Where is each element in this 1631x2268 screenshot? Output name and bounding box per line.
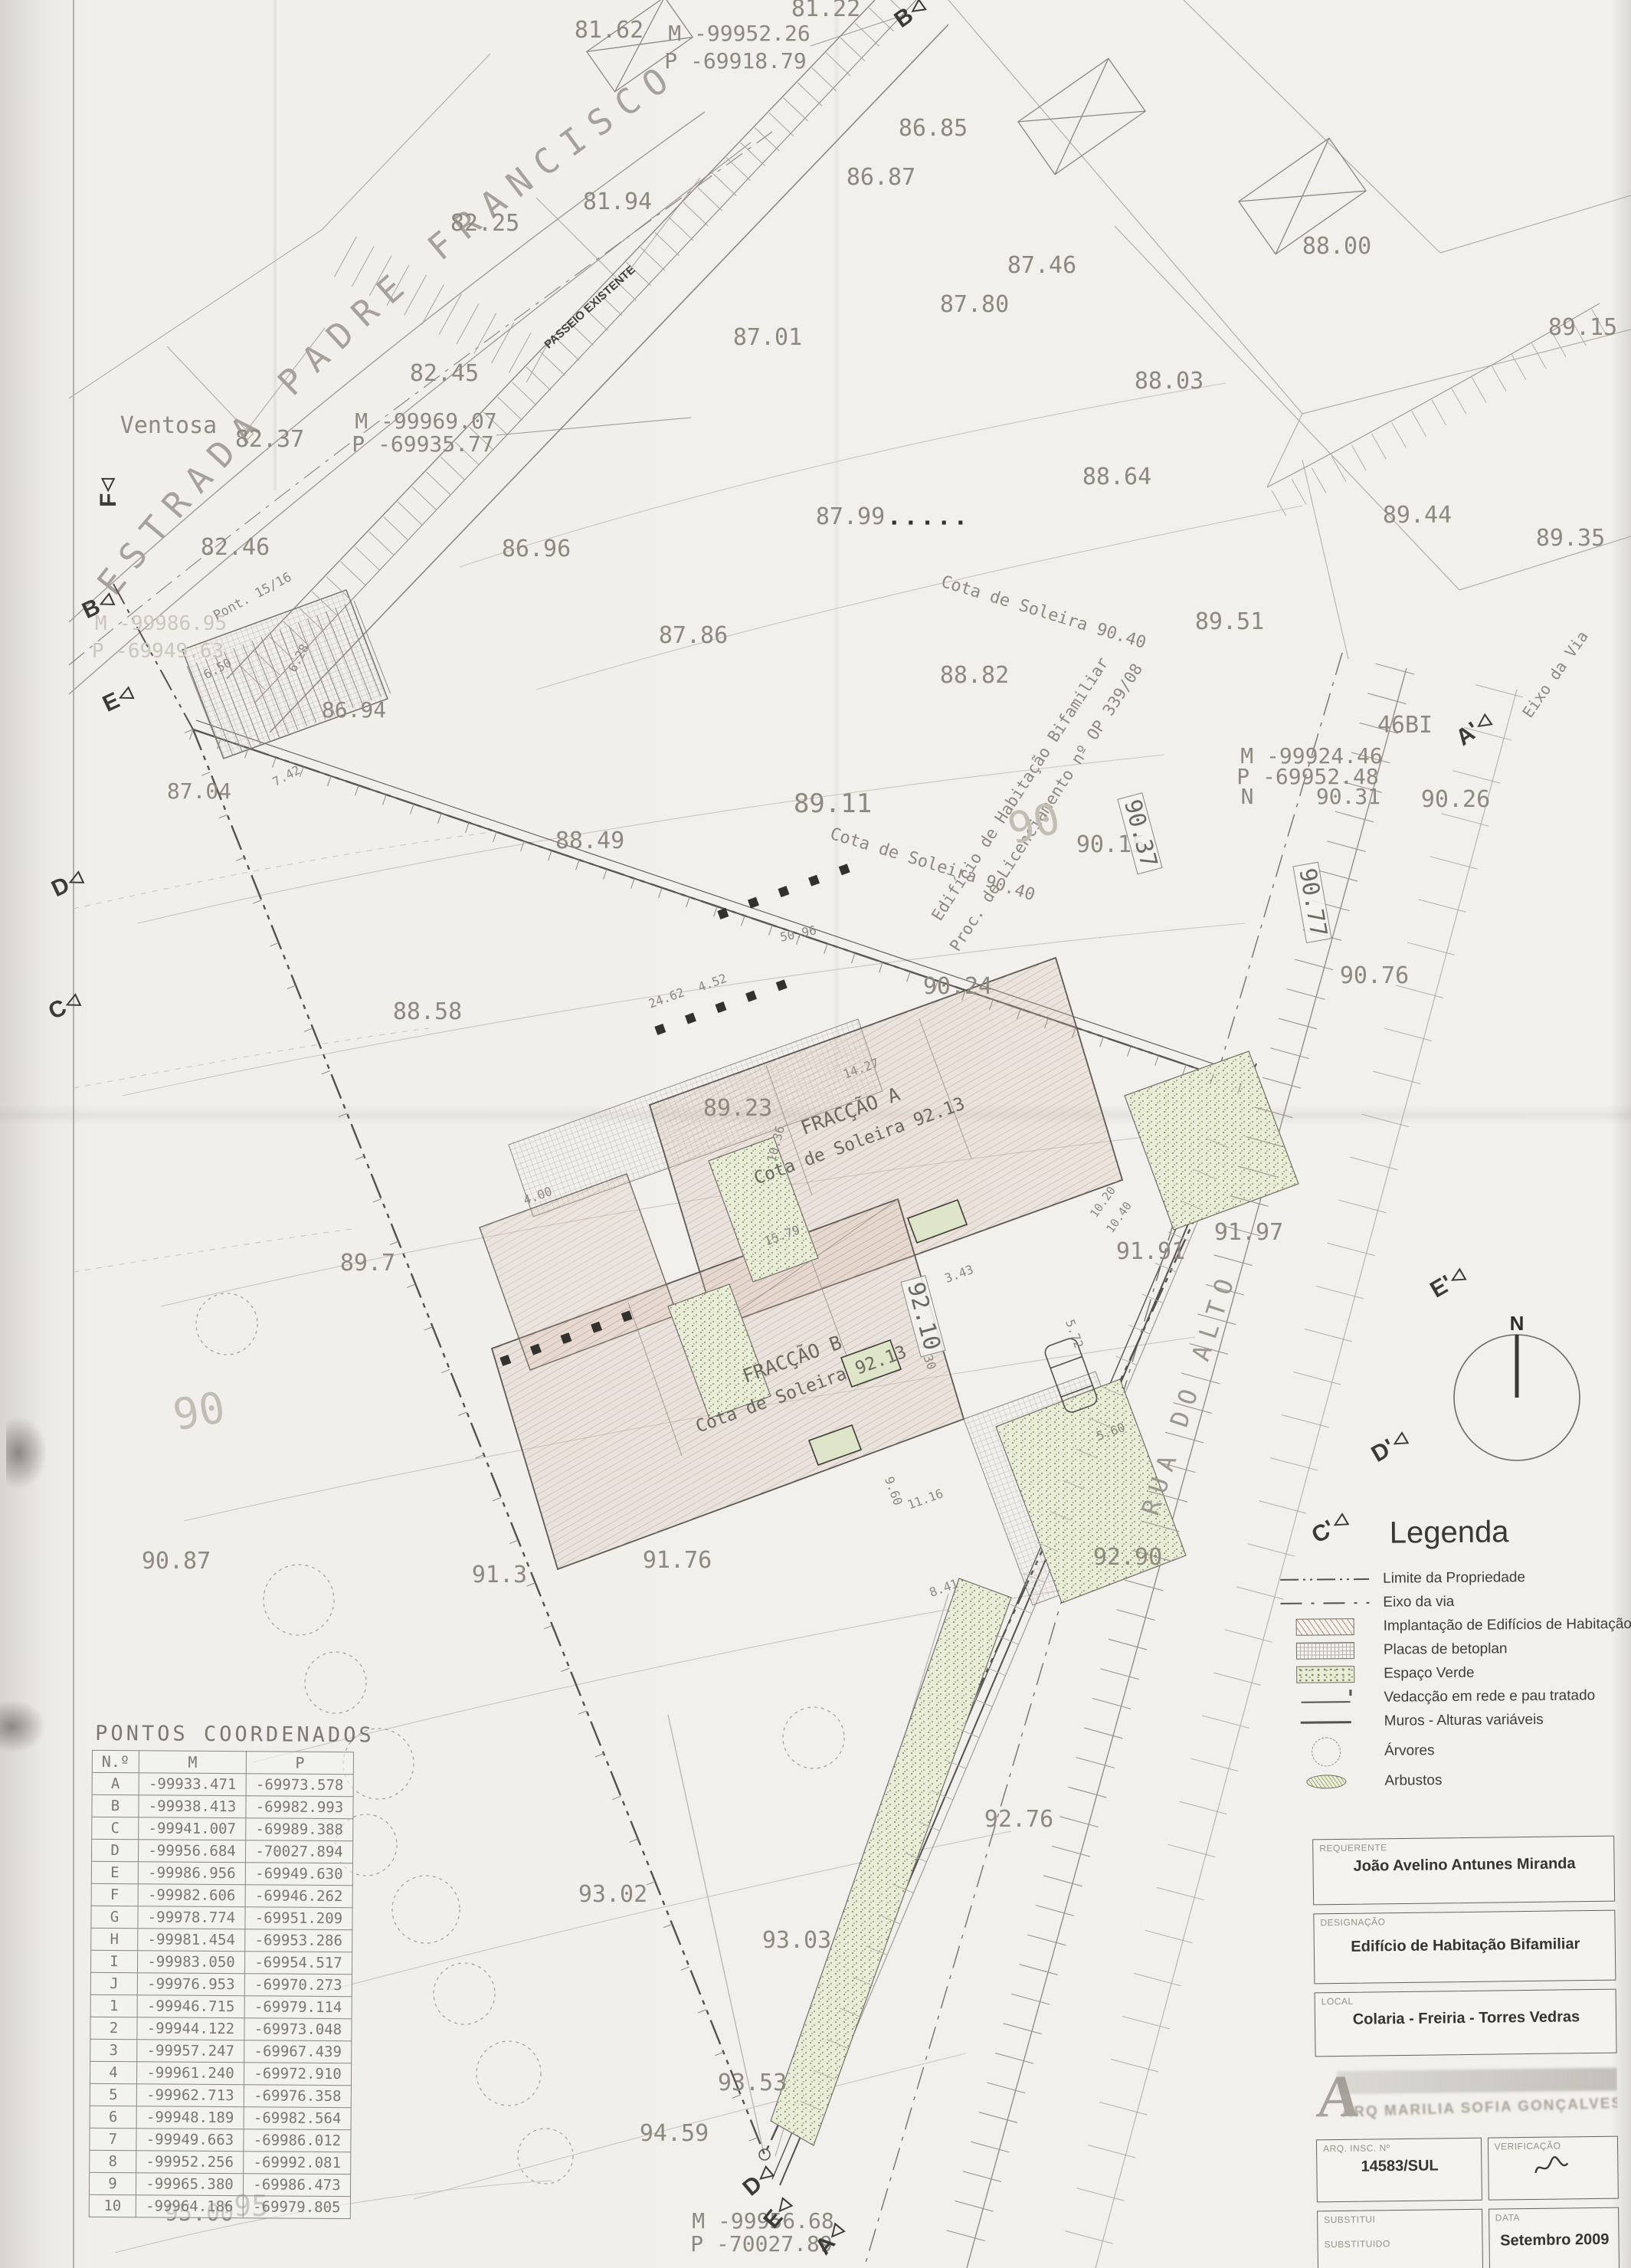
- table-cell: -99986.956: [138, 1862, 245, 1885]
- table-cell: -70027.894: [245, 1840, 352, 1863]
- legend-item: Limite da Propriedade: [1277, 1568, 1622, 1588]
- plan-label: 81.62: [575, 19, 644, 42]
- plan-label: 89.7: [340, 1252, 395, 1275]
- local-value: Colaria - Freiria - Torres Vedras: [1323, 2008, 1610, 2030]
- table-cell: H: [91, 1928, 138, 1950]
- plan-label: P -69935.77: [352, 434, 493, 455]
- table-cell: -69970.273: [244, 1974, 352, 1997]
- table-cell: -69986.473: [243, 2174, 350, 2197]
- table-cell: -69979.805: [243, 2196, 350, 2219]
- section-marker-flag: ◁: [97, 478, 116, 491]
- table-row: 10-99964.186-69979.805: [89, 2194, 350, 2218]
- local-label: LOCAL: [1322, 1996, 1354, 2007]
- plan-label: 88.64: [1082, 466, 1151, 489]
- data-value: Setembro 2009: [1497, 2231, 1613, 2250]
- table-cell: -99938.413: [139, 1795, 246, 1818]
- plan-label: 90.76: [1340, 965, 1409, 988]
- table-cell: -69976.358: [244, 2085, 351, 2108]
- plan-label: 90: [1004, 797, 1065, 852]
- plan-label: M -99969.07: [355, 411, 496, 432]
- plan-label: ▪ ▪ ▪ ▪ ▪: [891, 518, 965, 528]
- title-block: REQUERENTE João Avelino Antunes Miranda …: [1312, 1836, 1622, 2268]
- scanned-site-plan: ESTRADA PADRE FRANCISCO: [0, 0, 1631, 2268]
- verificacao-box: VERIFICAÇÃO: [1487, 2136, 1618, 2201]
- legend-item-label: Limite da Propriedade: [1383, 1569, 1525, 1588]
- table-column-header: N.º: [92, 1750, 139, 1772]
- hatch-swatch-icon: [1296, 1618, 1354, 1636]
- table-column-header: P: [246, 1752, 353, 1775]
- local-box: LOCAL Colaria - Freiria - Torres Vedras: [1315, 1989, 1617, 2057]
- table-cell: I: [90, 1950, 137, 1972]
- shrub-swatch-icon: [1306, 1775, 1346, 1788]
- table-cell: -69949.630: [245, 1863, 352, 1886]
- section-marker-f: F◁: [97, 478, 120, 507]
- plan-label: 86.94: [322, 700, 386, 721]
- table-cell: -69982.564: [244, 2107, 351, 2130]
- table-cell: -99941.007: [139, 1817, 246, 1840]
- plan-label: 90.26: [1421, 788, 1490, 811]
- table-cell: -99957.247: [137, 2040, 244, 2063]
- table-cell: -69954.517: [244, 1952, 352, 1975]
- table-cell: 2: [90, 2017, 137, 2039]
- coordinate-table: N.ºMP A-99933.471-69973.578B-99938.413-6…: [89, 1750, 354, 2219]
- table-cell: 8: [90, 2150, 136, 2172]
- legend: Legenda Limite da PropriedadeEixo da via…: [1276, 1514, 1623, 1798]
- verificacao-signature: [1531, 2155, 1577, 2179]
- legend-item: Árvores: [1279, 1735, 1623, 1767]
- designacao-box: DESIGNAÇÃO Edifício de Habitação Bifamil…: [1313, 1910, 1616, 1984]
- plan-label: 90.87: [142, 1550, 211, 1573]
- table-cell: 4: [90, 2061, 136, 2083]
- table-row: B-99938.413-69982.993: [92, 1794, 353, 1818]
- table-cell: -99952.256: [136, 2151, 244, 2174]
- legend-item-label: Espaço Verde: [1384, 1665, 1475, 1683]
- table-cell: -99946.715: [137, 1995, 244, 2018]
- table-cell: G: [91, 1906, 138, 1928]
- table-cell: 10: [89, 2194, 136, 2217]
- legend-item: Eixo da via: [1277, 1592, 1622, 1612]
- table-cell: -99976.953: [137, 1973, 244, 1996]
- table-cell: -69967.439: [244, 2040, 352, 2063]
- table-row: 6-99948.189-69982.564: [90, 2106, 351, 2129]
- table-cell: -99948.189: [136, 2106, 244, 2129]
- table-column-header: M: [139, 1751, 246, 1774]
- requerente-label: REQUERENTE: [1319, 1842, 1387, 1853]
- requerente-value: João Avelino Antunes Miranda: [1321, 1855, 1607, 1876]
- stamp-smudge: [1337, 2068, 1617, 2094]
- plan-label: 89.44: [1383, 504, 1452, 527]
- table-cell: D: [91, 1839, 138, 1861]
- table-row: J-99976.953-69970.273: [90, 1972, 352, 1996]
- plan-label: 91.3: [472, 1564, 527, 1587]
- plan-label: 89.51: [1195, 611, 1264, 634]
- fence-swatch-icon: [1301, 1693, 1350, 1703]
- plan-label: 81.94: [583, 191, 652, 214]
- plan-label: M -99952.26: [668, 23, 810, 44]
- plan-label: 88.82: [940, 664, 1009, 687]
- table-cell: -99978.774: [138, 1906, 245, 1929]
- plan-label: 91.91: [1116, 1241, 1185, 1263]
- table-cell: 1: [90, 1994, 137, 2017]
- plan-label: 90.31: [1316, 786, 1380, 808]
- table-row: D-99956.684-70027.894: [91, 1839, 352, 1863]
- plan-label: 86.96: [502, 538, 571, 561]
- plan-label: 92.76: [984, 1808, 1053, 1831]
- plan-label: P -69918.79: [664, 51, 806, 72]
- plan-label: 87.46: [1007, 254, 1076, 277]
- stipple-swatch-icon: [1296, 1666, 1354, 1683]
- plan-label: N: [1241, 786, 1254, 808]
- road-estrada: [69, 14, 908, 694]
- north-label: N: [1510, 1312, 1525, 1336]
- plan-label: 86.85: [899, 117, 968, 140]
- legend-item: Vedacção em rede e pau tratado: [1278, 1687, 1623, 1707]
- requerente-box: REQUERENTE João Avelino Antunes Miranda: [1312, 1836, 1615, 1906]
- dash-swatch-icon: [1280, 1602, 1369, 1605]
- designacao-label: DESIGNAÇÃO: [1320, 1916, 1385, 1928]
- table-row: 3-99957.247-69967.439: [90, 2039, 352, 2063]
- plan-label: 90: [170, 1387, 228, 1438]
- table-row: G-99978.774-69951.209: [91, 1906, 352, 1929]
- table-cell: -99961.240: [136, 2062, 244, 2085]
- table-header-row: N.ºMP: [92, 1750, 353, 1774]
- coordinate-table-title: PONTOS COORDENADOS: [95, 1722, 354, 1747]
- legend-title: Legenda: [1276, 1514, 1621, 1552]
- substitui-label: SUBSTITUI: [1324, 2214, 1375, 2225]
- legend-item-label: Placas de betoplan: [1384, 1640, 1508, 1658]
- tree-swatch-icon: [1312, 1737, 1341, 1766]
- table-cell: -69973.048: [244, 2018, 352, 2041]
- table-cell: -69953.286: [245, 1929, 352, 1952]
- architect-stamp: A ARQ MARILIA SOFIA GONÇALVES COELHO: [1315, 2062, 1618, 2132]
- table-row: A-99933.471-69973.578: [92, 1772, 353, 1796]
- plan-label: M -99986.95: [95, 614, 227, 634]
- plan-label: Ventosa: [120, 415, 217, 438]
- table-row: 7-99949.663-69986.012: [90, 2128, 351, 2152]
- plan-label: 89.23: [703, 1097, 772, 1120]
- table-cell: -69989.388: [246, 1818, 353, 1841]
- arq-insc-label: ARQ. INSC. Nº: [1323, 2142, 1390, 2154]
- legend-item: Arbustos: [1279, 1771, 1623, 1791]
- data-box: DATA Setembro 2009: [1489, 2207, 1620, 2268]
- arq-insc-box: ARQ. INSC. Nº 14583/SUL: [1316, 2138, 1482, 2203]
- table-cell: -69973.578: [246, 1774, 353, 1797]
- plan-label: 46BI: [1377, 714, 1433, 737]
- wall-swatch-icon: [1301, 1721, 1351, 1724]
- plan-label: 94.59: [640, 2122, 709, 2145]
- legend-item-label: Arbustos: [1384, 1772, 1442, 1790]
- plan-label: 87.04: [167, 781, 231, 802]
- data-label: DATA: [1495, 2212, 1520, 2223]
- table-cell: -69992.081: [244, 2152, 351, 2175]
- plan-label: 89.11: [794, 791, 872, 817]
- table-cell: -99982.606: [138, 1884, 245, 1907]
- plan-label: 92.90: [1093, 1546, 1162, 1569]
- table-cell: -69986.012: [244, 2129, 351, 2152]
- plan-label: 91.97: [1214, 1221, 1283, 1244]
- plan-label: 88.58: [393, 1001, 462, 1024]
- coordinate-table-block: PONTOS COORDENADOS N.ºMP A-99933.471-699…: [89, 1722, 355, 2219]
- legend-item-label: Muros - Alturas variáveis: [1384, 1712, 1544, 1730]
- plan-label: 93.02: [578, 1883, 647, 1906]
- table-cell: E: [91, 1861, 138, 1883]
- table-cell: J: [90, 1972, 137, 1994]
- table-cell: -99949.663: [136, 2129, 244, 2152]
- table-cell: -99965.380: [136, 2173, 243, 2196]
- legend-item: Implantação de Edifícios de Habitação: [1278, 1616, 1623, 1636]
- legend-item: Placas de betoplan: [1278, 1640, 1623, 1660]
- table-cell: -69951.209: [245, 1907, 352, 1930]
- table-cell: 3: [90, 2039, 137, 2061]
- plan-label: 93.53: [718, 2072, 787, 2095]
- plan-label: 87.86: [659, 624, 728, 647]
- plan-label: 82.37: [235, 428, 304, 451]
- table-row: 4-99961.240-69972.910: [90, 2061, 351, 2085]
- table-cell: 7: [90, 2128, 136, 2150]
- table-row: 1-99946.715-69979.114: [90, 1994, 352, 2018]
- table-cell: -99983.050: [137, 1951, 244, 1974]
- table-cell: -69982.993: [246, 1796, 353, 1819]
- table-cell: F: [91, 1883, 138, 1906]
- plan-label: 87.80: [940, 293, 1009, 316]
- legend-item-label: Eixo da via: [1383, 1594, 1454, 1611]
- table-cell: 9: [89, 2172, 136, 2194]
- substituido-label: SUBSTITUIDO: [1325, 2238, 1390, 2250]
- plan-label: 89.15: [1548, 316, 1617, 339]
- plan-label: 87.01: [733, 326, 802, 349]
- table-cell: C: [92, 1817, 139, 1839]
- table-cell: -69946.262: [245, 1885, 352, 1908]
- verificacao-label: VERIFICAÇÃO: [1495, 2141, 1561, 2152]
- table-cell: 6: [90, 2106, 136, 2128]
- legend-item-label: Implantação de Edifícios de Habitação: [1384, 1616, 1631, 1635]
- table-cell: -99933.471: [139, 1773, 246, 1796]
- legend-item: Muros - Alturas variáveis: [1279, 1711, 1623, 1731]
- table-row: 2-99944.122-69973.048: [90, 2017, 352, 2040]
- table-row: H-99981.454-69953.286: [91, 1928, 352, 1952]
- legend-item-label: Árvores: [1384, 1742, 1435, 1760]
- arq-insc-value: 14583/SUL: [1325, 2157, 1475, 2176]
- plan-label: P -69949.63: [92, 641, 224, 661]
- plan-label: 88.03: [1135, 370, 1204, 393]
- table-cell: -99944.122: [137, 2017, 244, 2040]
- table-cell: -99962.713: [136, 2084, 244, 2107]
- table-cell: -99981.454: [138, 1929, 245, 1952]
- table-cell: A: [92, 1772, 139, 1794]
- plan-label: 87.99: [816, 506, 885, 529]
- substitui-box: SUBSTITUI SUBSTITUIDO: [1317, 2209, 1483, 2268]
- plan-label: 82.46: [201, 536, 270, 559]
- table-cell: -69972.910: [244, 2063, 351, 2086]
- table-cell: -99964.186: [136, 2195, 243, 2218]
- legend-item-label: Vedacção em rede e pau tratado: [1384, 1687, 1595, 1706]
- grid-swatch-icon: [1296, 1642, 1354, 1660]
- table-row: 5-99962.713-69976.358: [90, 2083, 351, 2107]
- table-cell: -69979.114: [244, 1996, 352, 2019]
- legend-items: Limite da PropriedadeEixo da viaImplanta…: [1277, 1568, 1623, 1791]
- designacao-value: Edifício de Habitação Bifamiliar: [1322, 1935, 1609, 1957]
- table-row: F-99982.606-69946.262: [91, 1883, 352, 1907]
- plan-label: 88.00: [1302, 235, 1371, 258]
- dashdot-swatch-icon: [1280, 1578, 1369, 1581]
- table-row: C-99941.007-69989.388: [92, 1817, 353, 1840]
- plan-label: 86.87: [847, 166, 915, 189]
- table-row: I-99983.050-69954.517: [90, 1950, 352, 1974]
- plan-label: 90.24: [923, 975, 992, 998]
- north-compass: N: [1448, 1312, 1586, 1465]
- plan-label: 93.03: [762, 1929, 831, 1952]
- legend-item: Espaço Verde: [1278, 1663, 1623, 1683]
- plan-label: 88.49: [555, 830, 624, 853]
- table-row: 8-99952.256-69992.081: [90, 2150, 351, 2174]
- table-cell: -99956.684: [138, 1840, 245, 1863]
- table-cell: 5: [90, 2083, 136, 2106]
- table-cell: B: [92, 1794, 139, 1817]
- table-row: E-99986.956-69949.630: [91, 1861, 352, 1885]
- plan-label: 82.45: [410, 362, 479, 385]
- plan-label: 81.22: [791, 0, 860, 21]
- table-row: 9-99965.380-69986.473: [89, 2172, 350, 2196]
- plan-label: 91.76: [643, 1549, 712, 1572]
- plan-label: 82.25: [450, 212, 519, 235]
- stamp-text: ARQ MARILIA SOFIA GONÇALVES COELHO: [1341, 2096, 1618, 2122]
- plan-label: 89.35: [1536, 527, 1605, 550]
